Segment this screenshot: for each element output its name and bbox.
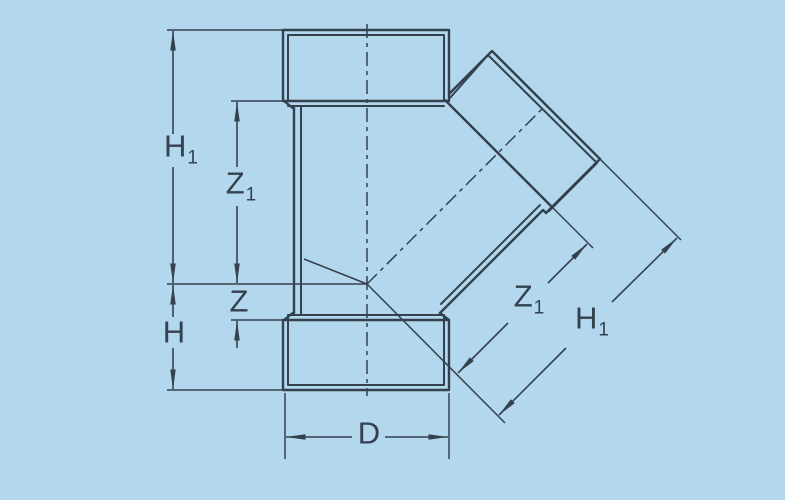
label-z-left: Z	[230, 286, 249, 317]
dim-z1-branch-sw	[458, 323, 508, 373]
label-h1-branch: H1	[575, 303, 609, 340]
extension-branch-mouth	[600, 159, 681, 240]
label-z1-branch: Z1	[514, 281, 545, 318]
label-z1-left-base: Z	[226, 166, 245, 201]
top-socket-outline	[283, 30, 449, 109]
bottom-socket-outline	[283, 312, 449, 390]
label-h-left-base: H	[163, 315, 185, 350]
branch-inner	[441, 55, 597, 304]
label-h1-left-sub: 1	[187, 148, 198, 169]
bottom-socket-inner	[288, 315, 444, 385]
wye-fitting-drawing	[0, 0, 785, 500]
label-z1-left-sub: 1	[246, 185, 257, 206]
label-h1-branch-base: H	[575, 301, 597, 336]
dim-z1-branch-ne	[548, 244, 587, 283]
extension-branch-shoulder	[552, 207, 593, 248]
label-h1-left: H1	[164, 131, 198, 168]
extension-lines	[167, 30, 681, 459]
drawing-canvas: H1 Z1 Z H D Z1 H1	[0, 0, 785, 500]
label-z1-left: Z1	[226, 168, 257, 205]
label-h-left: H	[163, 317, 185, 348]
dimension-lines	[173, 31, 677, 437]
label-z1-branch-base: Z	[514, 279, 533, 314]
label-d-bottom: D	[358, 418, 380, 449]
dim-h1-branch-ne	[612, 238, 677, 302]
label-h1-left-base: H	[164, 129, 186, 164]
label-d-bottom-base: D	[358, 416, 380, 451]
internal-junction-line	[304, 259, 367, 284]
branch-centerline	[367, 105, 546, 284]
label-z-left-base: Z	[230, 284, 249, 319]
label-h1-branch-sub: 1	[598, 320, 609, 341]
top-socket-inner	[288, 35, 444, 106]
branch-outline	[440, 51, 600, 313]
extension-center-diagonal	[367, 284, 505, 423]
label-z1-branch-sub: 1	[534, 298, 545, 319]
dim-h1-branch-sw	[499, 348, 566, 415]
